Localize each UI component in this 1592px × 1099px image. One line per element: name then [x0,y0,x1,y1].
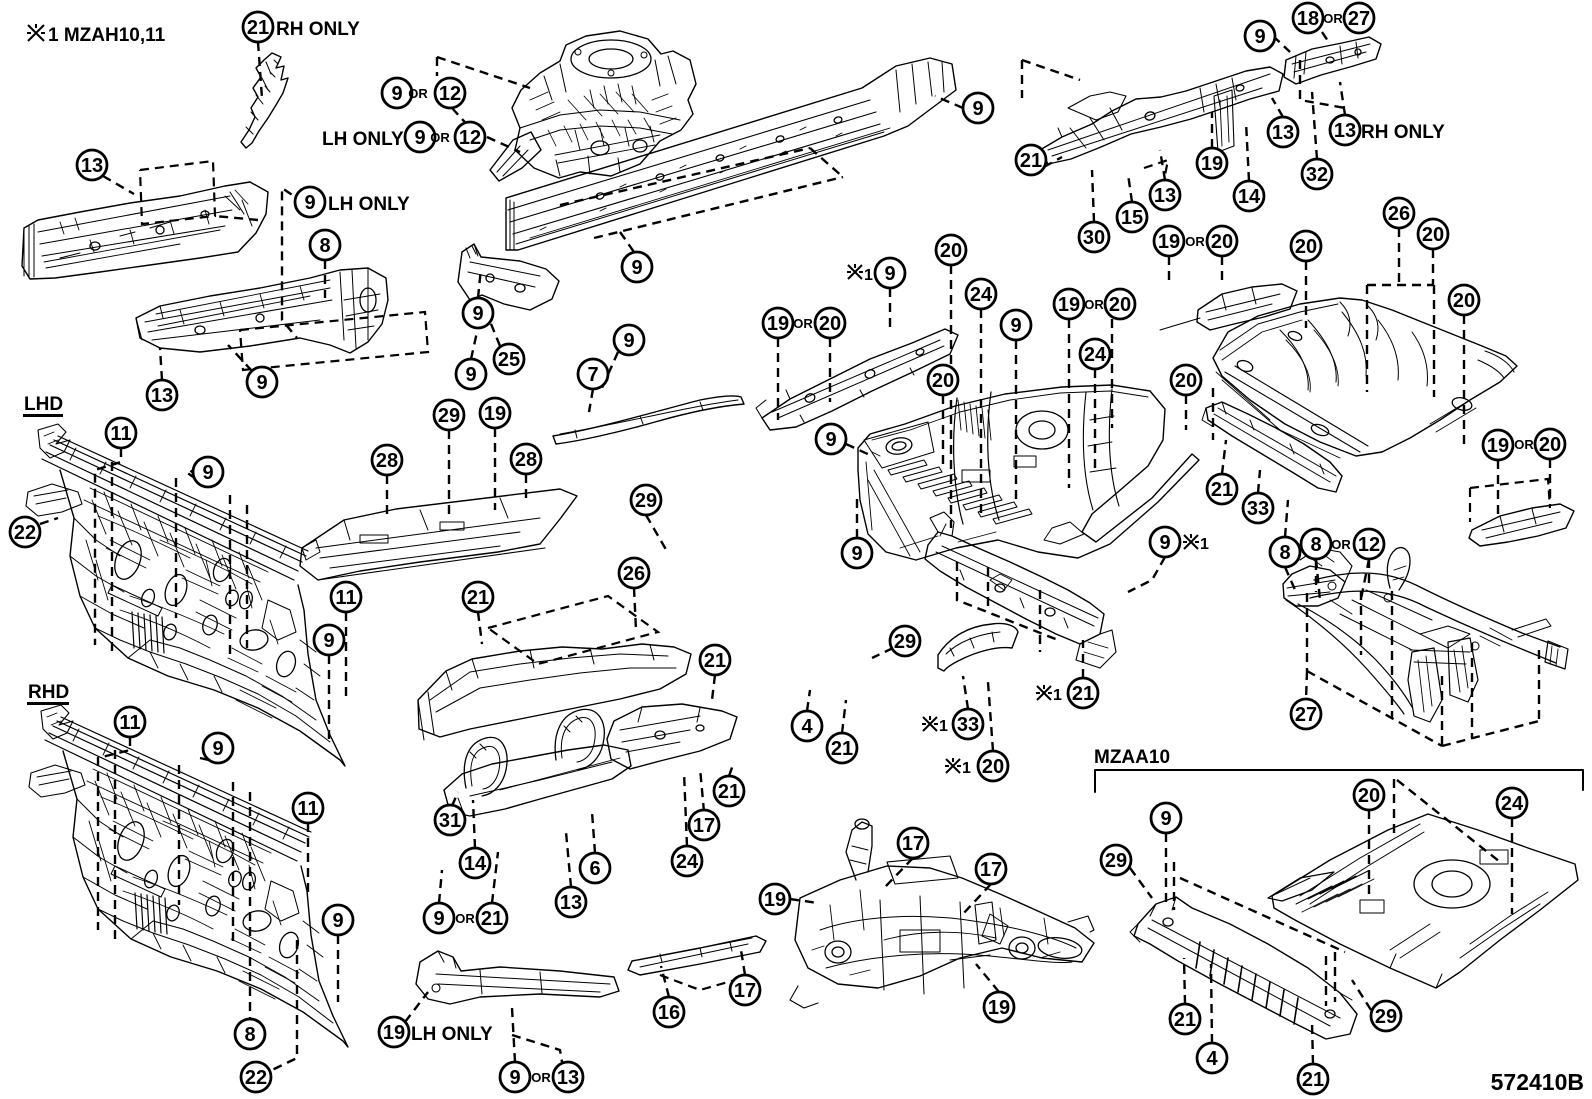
svg-text:20: 20 [982,756,1004,778]
svg-text:9: 9 [304,192,315,214]
svg-text:20: 20 [940,240,962,262]
svg-text:13: 13 [1272,122,1294,144]
svg-text:LH ONLY: LH ONLY [328,194,410,215]
svg-text:13: 13 [151,385,173,407]
svg-text:9: 9 [851,543,862,565]
svg-text:1: 1 [1200,536,1209,553]
svg-text:29: 29 [635,490,657,512]
svg-text:21: 21 [1211,479,1233,501]
svg-text:17: 17 [734,980,756,1002]
svg-text:8: 8 [1310,534,1321,556]
svg-text:RH ONLY: RH ONLY [276,19,360,40]
svg-text:9: 9 [623,330,634,352]
svg-text:OR: OR [793,316,813,331]
svg-text:21: 21 [831,738,853,760]
svg-text:13: 13 [560,892,582,914]
svg-text:OR: OR [1084,297,1104,312]
svg-text:9: 9 [825,429,836,451]
svg-text:20: 20 [1453,290,1475,312]
svg-text:24: 24 [1084,344,1107,366]
svg-text:1 MZAH10,11: 1 MZAH10,11 [48,25,166,46]
svg-text:11: 11 [119,712,140,734]
svg-text:19: 19 [1201,153,1223,175]
svg-text:29: 29 [1375,1006,1397,1028]
svg-text:21: 21 [1174,1009,1196,1031]
svg-text:9: 9 [323,630,334,652]
svg-text:12: 12 [439,83,461,105]
svg-text:9: 9 [433,908,444,930]
svg-text:1: 1 [962,760,971,777]
svg-text:27: 27 [1348,8,1370,30]
svg-text:24: 24 [676,851,699,873]
svg-text:22: 22 [245,1067,267,1089]
svg-text:33: 33 [957,714,979,736]
svg-text:19: 19 [484,403,506,425]
svg-text:OR: OR [455,911,475,926]
svg-text:LH ONLY: LH ONLY [322,129,404,150]
svg-text:19: 19 [1487,435,1509,457]
svg-text:RH ONLY: RH ONLY [1361,122,1445,143]
svg-text:13: 13 [1154,185,1176,207]
svg-text:33: 33 [1247,498,1269,520]
svg-text:11: 11 [297,798,318,820]
svg-text:9: 9 [509,1067,520,1089]
svg-text:20: 20 [1211,231,1233,253]
svg-text:OR: OR [1323,11,1343,26]
svg-text:19: 19 [1158,231,1180,253]
svg-text:9: 9 [332,910,343,932]
svg-text:21: 21 [718,781,740,803]
svg-text:9: 9 [1159,532,1170,554]
svg-text:21: 21 [704,650,726,672]
svg-text:1: 1 [939,718,948,735]
svg-text:24: 24 [1501,793,1524,815]
svg-text:6: 6 [589,858,600,880]
svg-text:9: 9 [1160,808,1171,830]
svg-text:13: 13 [81,155,103,177]
svg-text:9: 9 [391,83,402,105]
svg-text:29: 29 [438,405,460,427]
svg-text:17: 17 [902,833,924,855]
svg-text:20: 20 [1422,224,1444,246]
svg-text:9: 9 [472,303,483,325]
svg-text:OR: OR [1185,234,1205,249]
svg-text:7: 7 [587,364,598,386]
svg-text:1: 1 [864,267,873,284]
svg-text:OR: OR [1514,437,1534,452]
svg-text:21: 21 [481,908,503,930]
svg-text:16: 16 [658,1002,680,1024]
svg-text:4: 4 [801,716,813,738]
svg-text:11: 11 [335,587,356,609]
svg-text:21: 21 [1072,683,1094,705]
svg-text:13: 13 [1334,120,1356,142]
svg-text:20: 20 [932,370,954,392]
svg-text:11: 11 [110,423,131,445]
svg-text:22: 22 [14,522,36,544]
svg-text:12: 12 [459,127,481,149]
svg-text:24: 24 [970,284,993,306]
svg-text:9: 9 [256,372,267,394]
svg-text:20: 20 [1358,785,1380,807]
svg-text:14: 14 [464,853,487,875]
svg-text:9: 9 [212,738,223,760]
svg-text:20: 20 [1109,294,1131,316]
svg-text:9: 9 [202,462,213,484]
svg-text:29: 29 [1105,850,1127,872]
svg-text:572410B: 572410B [1491,1069,1584,1095]
svg-text:OR: OR [1331,537,1351,552]
svg-text:17: 17 [980,859,1002,881]
svg-text:20: 20 [1175,370,1197,392]
svg-text:26: 26 [1388,203,1410,225]
svg-text:9: 9 [1254,26,1265,48]
svg-text:9: 9 [414,127,425,149]
svg-text:8: 8 [244,1024,255,1046]
svg-text:RHD: RHD [28,682,69,703]
svg-text:LHD: LHD [24,394,63,415]
svg-text:OR: OR [408,86,428,101]
svg-text:26: 26 [623,563,645,585]
svg-text:20: 20 [819,313,841,335]
svg-text:29: 29 [894,631,916,653]
svg-text:28: 28 [515,449,537,471]
svg-text:8: 8 [319,235,330,257]
svg-text:31: 31 [439,810,461,832]
svg-text:OR: OR [531,1070,551,1085]
svg-text:28: 28 [376,450,398,472]
svg-text:8: 8 [1279,542,1290,564]
svg-text:19: 19 [383,1022,405,1044]
svg-text:LH ONLY: LH ONLY [411,1024,493,1045]
svg-text:21: 21 [467,587,489,609]
svg-text:OR: OR [430,130,450,145]
svg-text:20: 20 [1539,434,1561,456]
svg-text:27: 27 [1295,704,1317,726]
svg-text:12: 12 [1358,534,1380,556]
svg-text:9: 9 [465,364,476,386]
svg-text:25: 25 [498,349,520,371]
svg-text:13: 13 [557,1067,579,1089]
svg-text:9: 9 [972,98,983,120]
svg-text:21: 21 [247,17,269,39]
svg-text:15: 15 [1121,207,1143,229]
svg-text:19: 19 [988,997,1010,1019]
svg-text:1: 1 [1053,687,1062,704]
svg-text:17: 17 [693,815,715,837]
svg-text:21: 21 [1020,150,1042,172]
svg-text:9: 9 [1010,315,1021,337]
svg-text:19: 19 [767,313,789,335]
svg-text:18: 18 [1297,8,1319,30]
svg-text:21: 21 [1302,1069,1324,1091]
svg-text:14: 14 [1238,186,1261,208]
svg-text:19: 19 [1058,294,1080,316]
svg-text:9: 9 [884,263,895,285]
svg-text:30: 30 [1083,227,1105,249]
svg-text:9: 9 [631,257,642,279]
svg-text:32: 32 [1306,164,1328,186]
svg-text:4: 4 [1206,1048,1218,1070]
svg-text:20: 20 [1295,236,1317,258]
svg-text:MZAA10: MZAA10 [1094,747,1170,768]
svg-text:19: 19 [764,889,786,911]
